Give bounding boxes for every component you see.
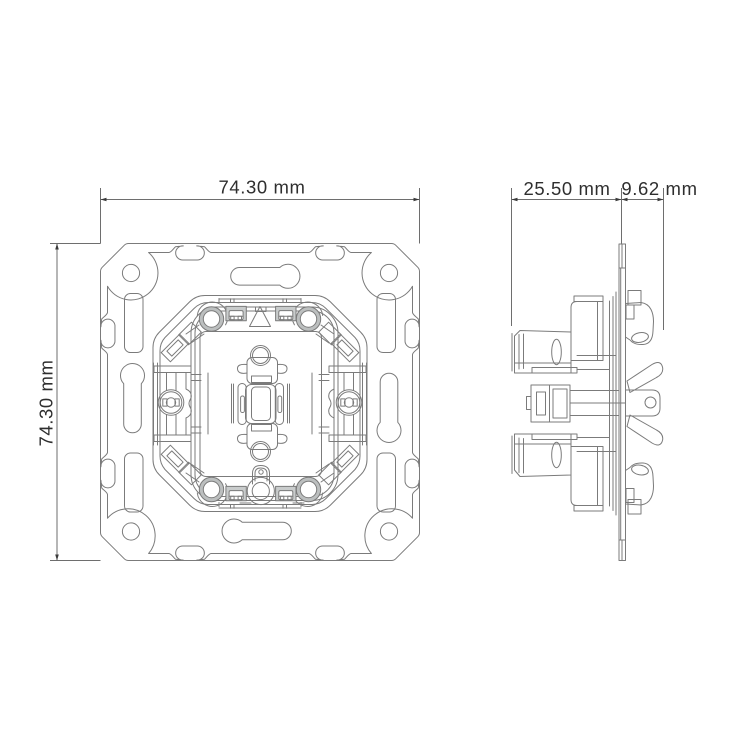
svg-text:74.30 mm: 74.30 mm [36, 359, 57, 446]
svg-text:25.50 mm: 25.50 mm [523, 178, 610, 199]
svg-text:74.30 mm: 74.30 mm [218, 177, 305, 198]
svg-text:9.62 mm: 9.62 mm [621, 178, 697, 199]
